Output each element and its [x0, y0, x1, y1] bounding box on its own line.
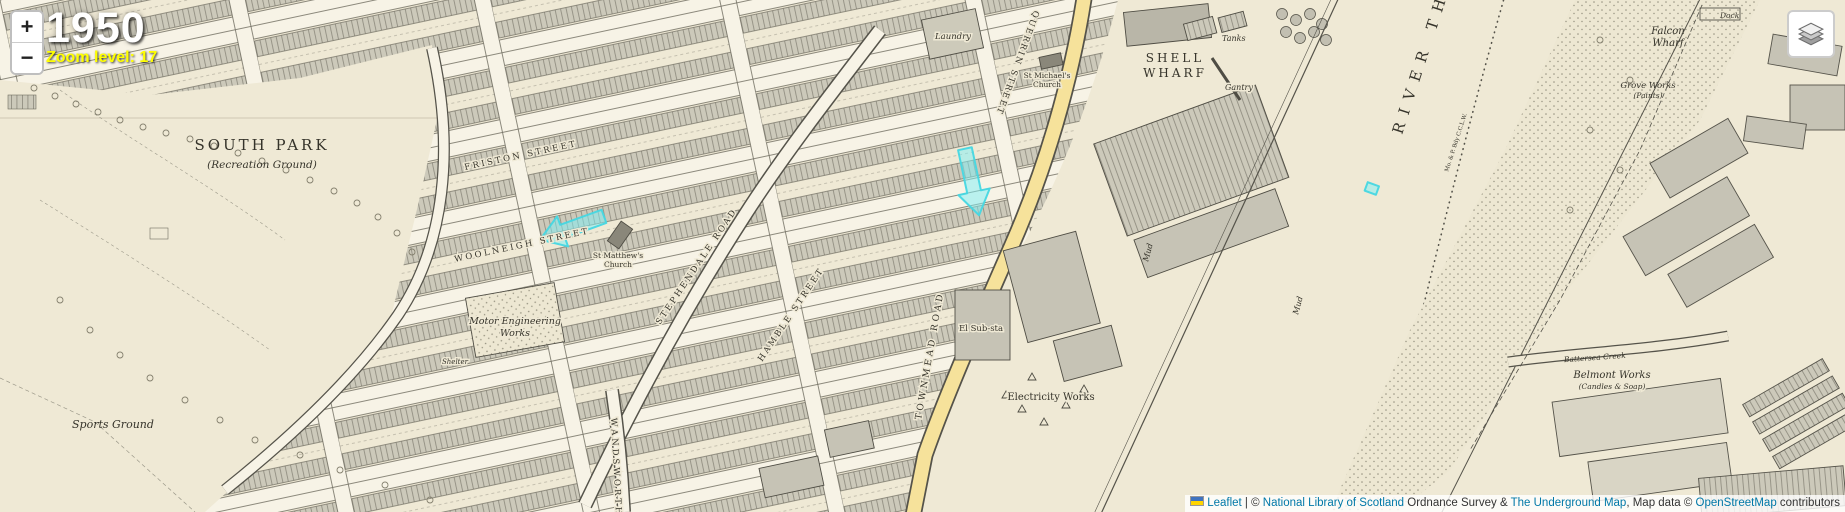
attribution-separator: | © — [1242, 497, 1263, 509]
nls-link[interactable]: National Library of Scotland — [1263, 497, 1404, 509]
attribution-map-data-text: , Map data © — [1626, 497, 1695, 509]
ukraine-flag-icon — [1190, 496, 1204, 506]
label-motor-works: Motor Engineering — [468, 316, 561, 327]
svg-text:(Candles & Soap): (Candles & Soap) — [1579, 382, 1646, 391]
label-el-substa: El Sub-sta — [959, 324, 1003, 334]
label-gantry: Gantry — [1225, 83, 1253, 92]
label-laundry: Laundry — [934, 32, 971, 42]
label-south-park-sub: (Recreation Ground) — [207, 159, 317, 171]
osm-link[interactable]: OpenStreetMap — [1696, 497, 1777, 509]
map-canvas[interactable]: SOUTH PARK (Recreation Ground) Sports Gr… — [0, 0, 1845, 512]
svg-text:(Paints): (Paints) — [1633, 91, 1662, 100]
leaflet-link[interactable]: Leaflet — [1207, 497, 1242, 509]
underground-map-link[interactable]: The Underground Map — [1511, 497, 1627, 509]
svg-text:WHARF: WHARF — [1143, 66, 1207, 80]
svg-text:Wharf: Wharf — [1652, 38, 1685, 49]
label-grove-works: Grove Works — [1620, 81, 1676, 91]
label-shell-wharf: SHELL — [1146, 51, 1204, 65]
label-electricity-works: Electricity Works — [1007, 392, 1094, 403]
layers-icon — [1797, 20, 1825, 48]
attribution-contributors-text: contributors — [1777, 497, 1840, 509]
label-belmont-works: Belmont Works — [1572, 370, 1650, 381]
label-st-michaels: St Michael's — [1024, 71, 1071, 80]
zoom-control: + − — [10, 10, 44, 75]
label-tanks: Tanks — [1222, 34, 1246, 43]
map-viewport[interactable]: SOUTH PARK (Recreation Ground) Sports Gr… — [0, 0, 1845, 512]
svg-text:Works: Works — [500, 328, 530, 339]
label-shelter: Shelter — [442, 358, 469, 366]
zoom-in-button[interactable]: + — [12, 12, 42, 42]
layers-control-button[interactable] — [1787, 10, 1835, 58]
label-dock: Dock — [1719, 11, 1740, 20]
attribution-middle-text: Ordnance Survey & — [1404, 497, 1511, 509]
label-sports-ground: Sports Ground — [72, 418, 154, 431]
svg-text:Church: Church — [1033, 80, 1061, 89]
label-falcon-wharf: Falcon — [1650, 26, 1684, 37]
label-st-matthews: St Matthew's — [593, 251, 643, 260]
zoom-out-button[interactable]: − — [12, 42, 42, 73]
attribution-bar: Leaflet | © National Library of Scotland… — [1185, 495, 1845, 512]
label-south-park: SOUTH PARK — [194, 136, 329, 154]
svg-text:Church: Church — [604, 260, 632, 269]
